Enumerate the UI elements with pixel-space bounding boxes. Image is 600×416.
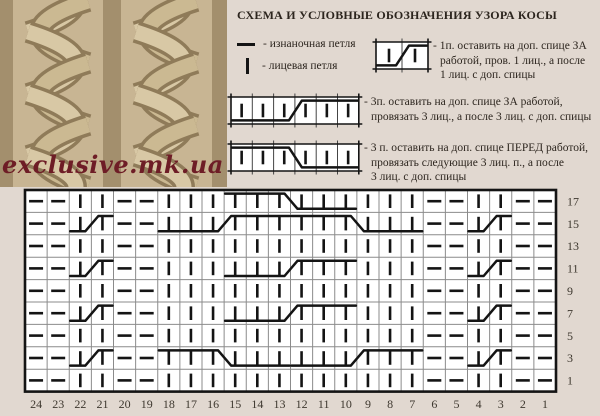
svg-text:6: 6 [431,397,437,411]
watermark-text: exclusive.mk.ua [2,150,227,179]
purl-stitch-icon [237,43,255,46]
legend-cable3-text: - 3 п. оставить на доп. спице ПЕРЕД рабо… [364,141,588,185]
svg-text:15: 15 [567,217,579,231]
svg-text:4: 4 [476,397,482,411]
svg-text:9: 9 [567,284,573,298]
legend-knit-label: - лицевая петля [262,60,337,72]
legend-purl-label: - изнаночная петля [263,38,356,50]
svg-text:23: 23 [52,397,64,411]
cable-3-over-3-back-icon [226,92,364,129]
svg-text:3: 3 [498,397,504,411]
svg-text:1: 1 [567,374,573,388]
knitting-chart-grid: 1715131197531242322212019181716151413121… [12,186,600,416]
cable-3-over-3-front-icon [226,139,364,176]
svg-text:13: 13 [567,239,579,253]
svg-text:1: 1 [542,397,548,411]
legend-item-knit: - лицевая петля [246,58,337,74]
svg-text:5: 5 [453,397,459,411]
svg-text:11: 11 [318,397,330,411]
svg-text:7: 7 [409,397,415,411]
svg-text:3: 3 [567,351,573,365]
svg-text:14: 14 [251,397,263,411]
svg-text:19: 19 [141,397,153,411]
legend-cable1-text: - 1п. оставить на доп. спице ЗА работой,… [433,39,587,83]
legend-cable2-text: - 3п. оставить на доп. спице ЗА работой,… [364,95,591,124]
page-title: СХЕМА И УСЛОВНЫЕ ОБОЗНАЧЕНИЯ УЗОРА КОСЫ [237,8,597,23]
svg-text:13: 13 [273,397,285,411]
svg-text:15: 15 [229,397,241,411]
svg-text:9: 9 [365,397,371,411]
svg-text:8: 8 [387,397,393,411]
svg-text:16: 16 [207,397,219,411]
svg-text:11: 11 [567,262,579,276]
svg-text:18: 18 [163,397,175,411]
legend-item-purl: - изнаночная петля [237,38,356,50]
svg-text:10: 10 [340,397,352,411]
knitting-pattern-page: exclusive.mk.ua СХЕМА И УСЛОВНЫЕ ОБОЗНАЧ… [0,0,600,416]
knit-stitch-icon [246,58,249,74]
svg-text:17: 17 [185,397,197,411]
svg-text:2: 2 [520,397,526,411]
svg-text:22: 22 [74,397,86,411]
svg-text:24: 24 [30,397,42,411]
knit-sample-photo: exclusive.mk.ua [0,0,227,187]
cable-1-over-1-back-icon [371,37,433,74]
svg-text:17: 17 [567,194,579,208]
svg-text:5: 5 [567,329,573,343]
svg-text:12: 12 [296,397,308,411]
svg-text:21: 21 [96,397,108,411]
svg-text:20: 20 [119,397,131,411]
svg-text:7: 7 [567,306,573,320]
